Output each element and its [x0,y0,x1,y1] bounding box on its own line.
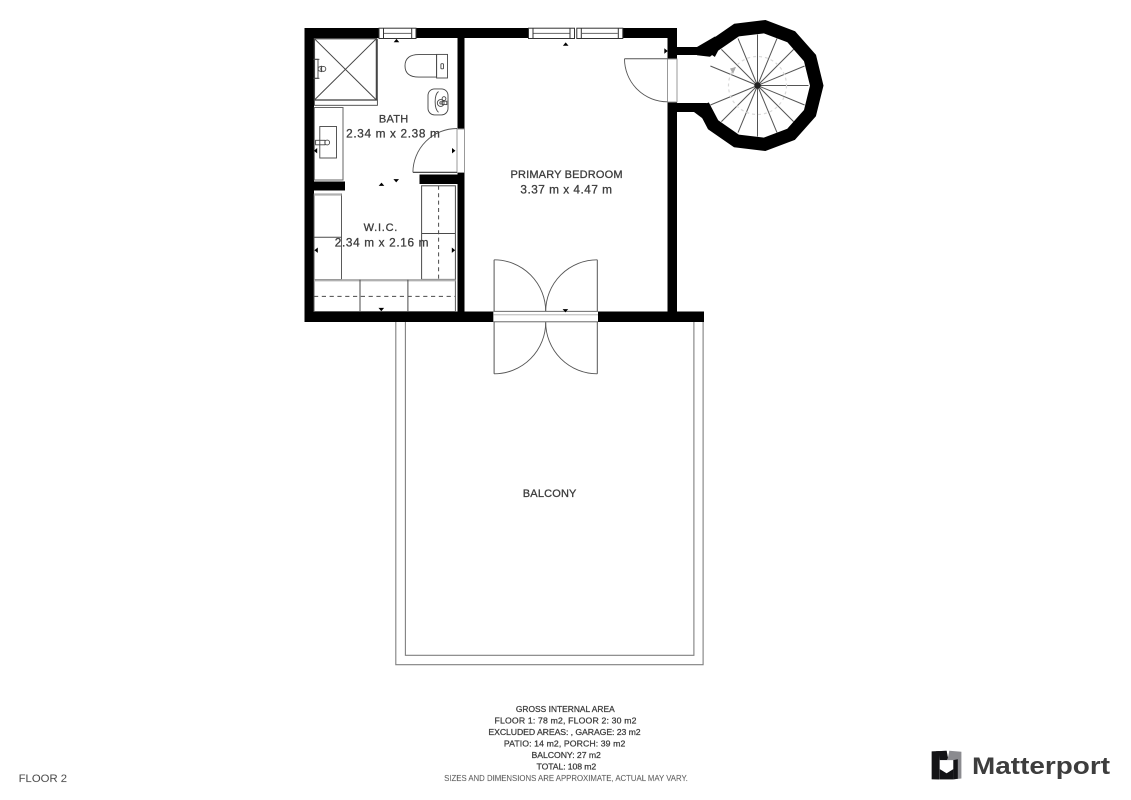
svg-text:3.37 m x 4.47 m: 3.37 m x 4.47 m [520,183,612,197]
svg-text:2.34 m x 2.38 m: 2.34 m x 2.38 m [346,127,440,141]
svg-text:BATH: BATH [379,114,408,126]
svg-text:W.I.C.: W.I.C. [364,222,398,234]
svg-text:BALCONY: BALCONY [523,488,577,500]
svg-text:PATIO: 14 m2, PORCH: 39 m2: PATIO: 14 m2, PORCH: 39 m2 [504,739,626,749]
svg-text:SIZES AND DIMENSIONS ARE APPRO: SIZES AND DIMENSIONS ARE APPROXIMATE, AC… [444,774,688,783]
svg-text:PRIMARY BEDROOM: PRIMARY BEDROOM [511,169,623,181]
svg-text:TOTAL: 108 m2: TOTAL: 108 m2 [537,762,597,772]
svg-text:FLOOR 1: 78 m2, FLOOR 2: 30 m2: FLOOR 1: 78 m2, FLOOR 2: 30 m2 [495,716,637,726]
svg-text:EXCLUDED AREAS: , GARAGE: 23 m: EXCLUDED AREAS: , GARAGE: 23 m2 [488,727,640,737]
svg-text:GROSS INTERNAL AREA: GROSS INTERNAL AREA [516,704,615,714]
svg-text:Matterport: Matterport [972,753,1110,780]
svg-text:2.34 m x 2.16 m: 2.34 m x 2.16 m [335,235,429,249]
svg-text:FLOOR 2: FLOOR 2 [19,773,68,785]
svg-text:BALCONY: 27 m2: BALCONY: 27 m2 [532,750,602,760]
